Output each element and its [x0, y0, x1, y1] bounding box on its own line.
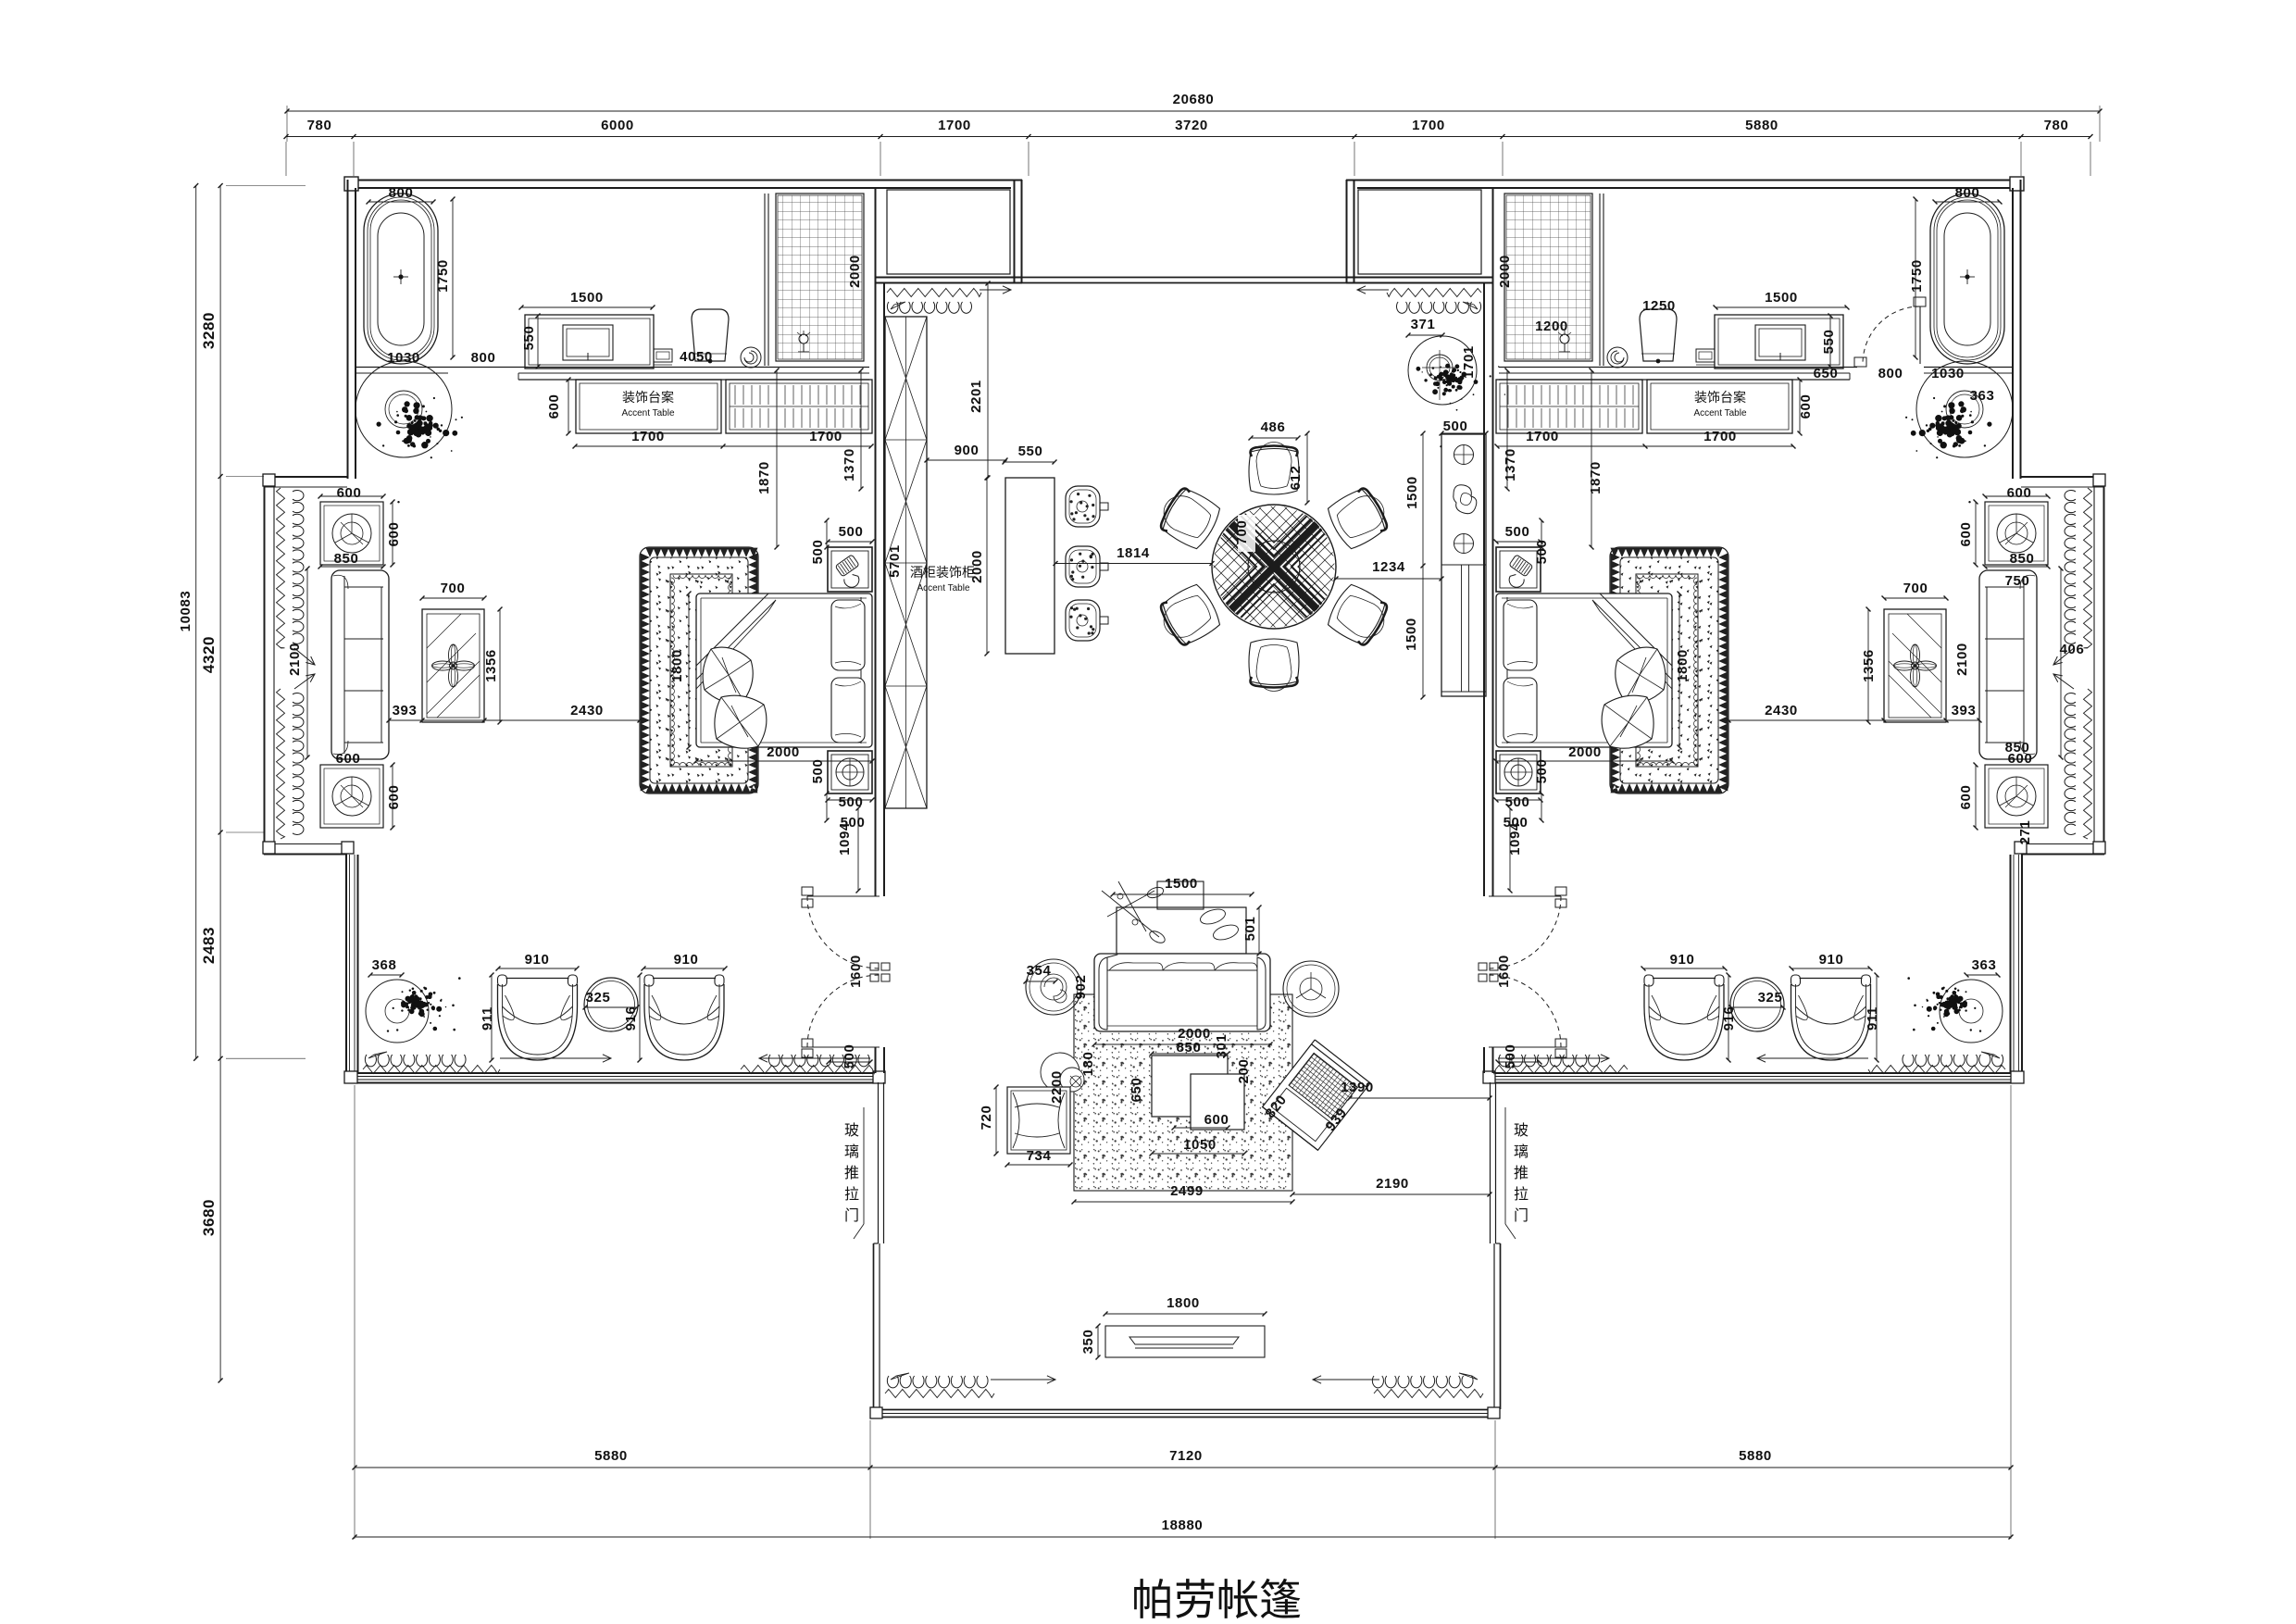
svg-text:850: 850: [1177, 1040, 1202, 1056]
svg-text:1800: 1800: [1675, 649, 1691, 682]
svg-text:600: 600: [386, 785, 402, 810]
svg-text:500: 500: [839, 794, 864, 810]
svg-text:酒柜装饰柜: 酒柜装饰柜: [910, 565, 975, 580]
svg-text:Accent Table: Accent Table: [1693, 408, 1747, 418]
svg-text:500: 500: [810, 759, 826, 784]
svg-text:500: 500: [1534, 759, 1550, 784]
svg-text:354: 354: [1027, 963, 1052, 979]
svg-text:1356: 1356: [1861, 649, 1877, 682]
svg-text:350: 350: [1080, 1330, 1096, 1355]
svg-text:600: 600: [1204, 1112, 1229, 1128]
svg-text:3680: 3680: [200, 1199, 218, 1236]
svg-text:1500: 1500: [570, 290, 604, 306]
svg-text:910: 910: [1670, 952, 1695, 968]
svg-text:1500: 1500: [1165, 876, 1198, 892]
svg-text:5880: 5880: [1739, 1448, 1772, 1464]
svg-text:600: 600: [1798, 394, 1814, 419]
svg-text:720: 720: [979, 1106, 994, 1131]
svg-text:850: 850: [2005, 740, 2030, 756]
svg-text:393: 393: [1952, 703, 1977, 718]
svg-text:363: 363: [1972, 957, 1997, 973]
svg-text:拉: 拉: [844, 1186, 859, 1203]
svg-text:500: 500: [1505, 794, 1530, 810]
svg-text:Accent Table: Accent Table: [621, 408, 675, 418]
svg-text:750: 750: [2005, 573, 2030, 589]
svg-text:璃: 璃: [844, 1143, 859, 1160]
svg-text:911: 911: [1865, 1006, 1880, 1031]
svg-text:2430: 2430: [570, 703, 604, 718]
svg-text:1094: 1094: [837, 822, 853, 856]
svg-text:600: 600: [2007, 485, 2032, 501]
svg-text:门: 门: [1514, 1207, 1529, 1224]
svg-text:10083: 10083: [178, 591, 193, 632]
svg-text:1500: 1500: [1765, 290, 1798, 306]
svg-text:1030: 1030: [387, 350, 420, 366]
svg-text:3280: 3280: [200, 312, 218, 349]
svg-text:1800: 1800: [1167, 1295, 1200, 1311]
svg-text:500: 500: [1505, 524, 1530, 540]
svg-text:1870: 1870: [756, 461, 772, 494]
svg-text:18880: 18880: [1162, 1518, 1204, 1533]
svg-text:1370: 1370: [842, 448, 857, 481]
svg-text:1700: 1700: [1412, 118, 1445, 133]
svg-text:推: 推: [1514, 1165, 1529, 1181]
svg-text:910: 910: [1819, 952, 1844, 968]
svg-text:1750: 1750: [435, 259, 451, 293]
svg-text:6000: 6000: [601, 118, 634, 133]
svg-text:1700: 1700: [1703, 429, 1737, 444]
svg-text:推: 推: [844, 1165, 859, 1181]
svg-text:910: 910: [525, 952, 550, 968]
svg-text:612: 612: [1288, 466, 1304, 491]
svg-text:368: 368: [372, 957, 397, 973]
svg-text:1700: 1700: [809, 429, 842, 444]
svg-text:600: 600: [546, 394, 562, 419]
svg-text:700: 700: [441, 581, 466, 596]
svg-text:500: 500: [1503, 1044, 1518, 1069]
svg-text:2000: 2000: [1568, 744, 1602, 760]
svg-text:180: 180: [1080, 1052, 1096, 1077]
svg-text:486: 486: [1261, 419, 1286, 435]
svg-text:600: 600: [337, 485, 362, 501]
svg-text:2201: 2201: [968, 380, 984, 413]
svg-text:拉: 拉: [1514, 1186, 1529, 1203]
svg-text:393: 393: [393, 703, 418, 718]
svg-text:1250: 1250: [1642, 298, 1676, 314]
svg-text:650: 650: [1814, 366, 1839, 381]
svg-text:2000: 2000: [847, 255, 863, 288]
svg-text:734: 734: [1027, 1148, 1052, 1164]
svg-text:1370: 1370: [1503, 448, 1518, 481]
svg-text:325: 325: [586, 990, 611, 1006]
svg-text:800: 800: [471, 350, 496, 366]
svg-text:玻: 玻: [844, 1122, 859, 1139]
svg-text:600: 600: [386, 522, 402, 547]
svg-text:1030: 1030: [1931, 366, 1965, 381]
svg-text:1870: 1870: [1588, 461, 1603, 494]
svg-text:1600: 1600: [1496, 955, 1512, 988]
svg-text:500: 500: [1443, 418, 1468, 434]
svg-text:271: 271: [2017, 820, 2033, 845]
svg-text:902: 902: [1073, 975, 1089, 1000]
svg-text:600: 600: [336, 751, 361, 767]
svg-text:1750: 1750: [1909, 259, 1925, 293]
svg-text:600: 600: [1958, 785, 1974, 810]
svg-text:550: 550: [1821, 330, 1837, 355]
svg-text:911: 911: [480, 1006, 495, 1031]
svg-text:1234: 1234: [1372, 559, 1405, 575]
svg-text:500: 500: [842, 1044, 857, 1069]
svg-text:2499: 2499: [1170, 1183, 1204, 1199]
svg-text:1700: 1700: [938, 118, 971, 133]
svg-text:501: 501: [1242, 917, 1258, 942]
svg-text:550: 550: [1018, 443, 1043, 459]
svg-text:1600: 1600: [848, 955, 864, 988]
svg-text:2430: 2430: [1765, 703, 1798, 718]
svg-text:910: 910: [674, 952, 699, 968]
svg-text:916: 916: [623, 1006, 639, 1031]
svg-text:4320: 4320: [200, 636, 218, 673]
svg-text:帕劳帐篷: 帕劳帐篷: [1131, 1577, 1302, 1624]
svg-text:500: 500: [1534, 540, 1550, 565]
svg-text:780: 780: [307, 118, 332, 133]
svg-text:5880: 5880: [1745, 118, 1778, 133]
svg-text:Accent Table: Accent Table: [917, 583, 970, 593]
svg-text:2200: 2200: [1049, 1070, 1065, 1104]
svg-text:1200: 1200: [1535, 319, 1568, 334]
svg-text:1500: 1500: [1404, 476, 1420, 509]
svg-text:916: 916: [1721, 1006, 1737, 1031]
svg-text:1500: 1500: [1404, 618, 1419, 651]
svg-text:600: 600: [1958, 522, 1974, 547]
svg-text:5880: 5880: [594, 1448, 628, 1464]
svg-text:3720: 3720: [1175, 118, 1208, 133]
svg-text:363: 363: [1970, 388, 1995, 404]
svg-text:1094: 1094: [1507, 822, 1523, 856]
svg-text:5701: 5701: [887, 544, 903, 578]
svg-text:1701: 1701: [1461, 345, 1477, 379]
svg-text:2000: 2000: [767, 744, 800, 760]
svg-text:301: 301: [1214, 1034, 1229, 1059]
svg-text:800: 800: [1955, 185, 1980, 201]
svg-text:800: 800: [389, 185, 414, 201]
svg-text:1390: 1390: [1341, 1080, 1374, 1095]
svg-text:2000: 2000: [1497, 255, 1513, 288]
svg-text:4050: 4050: [680, 349, 713, 365]
svg-text:20680: 20680: [1173, 92, 1215, 107]
svg-text:1700: 1700: [1526, 429, 1559, 444]
svg-text:550: 550: [521, 326, 537, 351]
svg-text:850: 850: [334, 551, 359, 567]
svg-text:900: 900: [955, 443, 980, 458]
svg-text:700: 700: [1903, 581, 1928, 596]
svg-text:406: 406: [2060, 642, 2085, 657]
svg-text:650: 650: [1129, 1078, 1144, 1103]
svg-text:1800: 1800: [669, 649, 685, 682]
svg-text:800: 800: [1878, 366, 1903, 381]
svg-text:1814: 1814: [1117, 545, 1150, 561]
svg-text:玻: 玻: [1514, 1122, 1529, 1139]
svg-text:1050: 1050: [1183, 1137, 1217, 1153]
svg-text:2190: 2190: [1376, 1176, 1409, 1192]
svg-text:璃: 璃: [1514, 1143, 1529, 1160]
svg-text:850: 850: [2010, 551, 2035, 567]
svg-text:780: 780: [2044, 118, 2069, 133]
svg-text:1700: 1700: [631, 429, 665, 444]
svg-text:2100: 2100: [287, 643, 303, 676]
svg-text:371: 371: [1411, 317, 1436, 332]
svg-text:装饰台案: 装饰台案: [1694, 390, 1746, 405]
svg-text:500: 500: [839, 524, 864, 540]
svg-text:2100: 2100: [1954, 643, 1970, 676]
svg-text:2483: 2483: [200, 927, 218, 964]
svg-text:门: 门: [844, 1207, 859, 1224]
svg-text:500: 500: [810, 540, 826, 565]
svg-text:装饰台案: 装饰台案: [622, 390, 674, 405]
svg-text:325: 325: [1758, 990, 1783, 1006]
svg-text:200: 200: [1236, 1059, 1252, 1084]
svg-text:1356: 1356: [483, 649, 499, 682]
svg-text:700: 700: [1234, 520, 1250, 545]
svg-text:7120: 7120: [1169, 1448, 1203, 1464]
